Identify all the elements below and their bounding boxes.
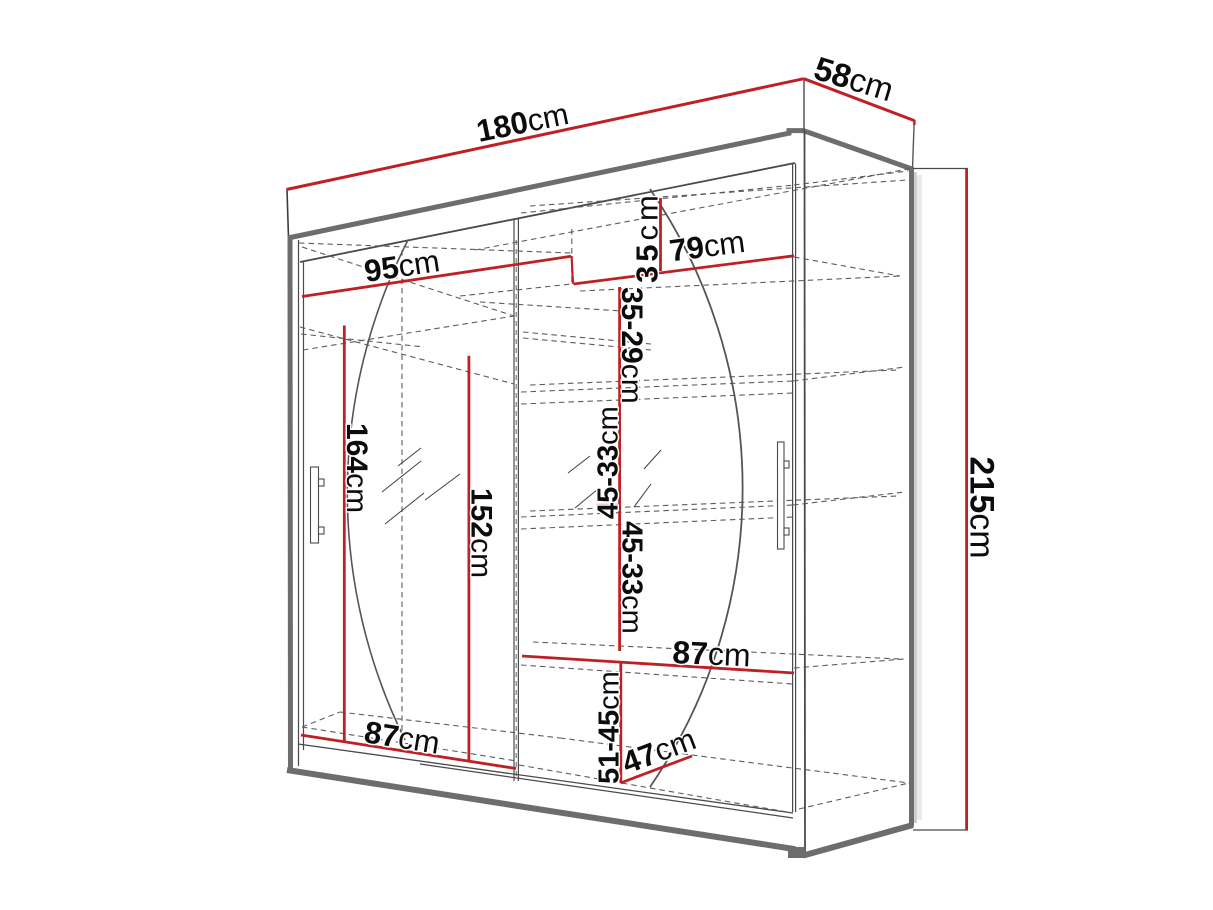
svg-text:45-33cm: 45-33cm [593,406,625,519]
svg-text:35cm: 35cm [630,191,665,283]
svg-text:87cm: 87cm [672,634,752,673]
svg-text:95cm: 95cm [362,243,442,289]
svg-text:79cm: 79cm [667,224,747,269]
svg-text:215cm: 215cm [963,457,1001,559]
svg-text:51-45cm: 51-45cm [594,671,626,784]
svg-text:47cm: 47cm [617,721,700,780]
svg-text:152cm: 152cm [465,488,498,578]
svg-text:58cm: 58cm [810,49,898,108]
svg-text:164cm: 164cm [340,423,373,513]
svg-text:87cm: 87cm [362,714,442,760]
svg-text:180cm: 180cm [473,96,571,149]
svg-text:45-33cm: 45-33cm [616,521,648,634]
svg-text:35-29cm: 35-29cm [615,287,648,404]
